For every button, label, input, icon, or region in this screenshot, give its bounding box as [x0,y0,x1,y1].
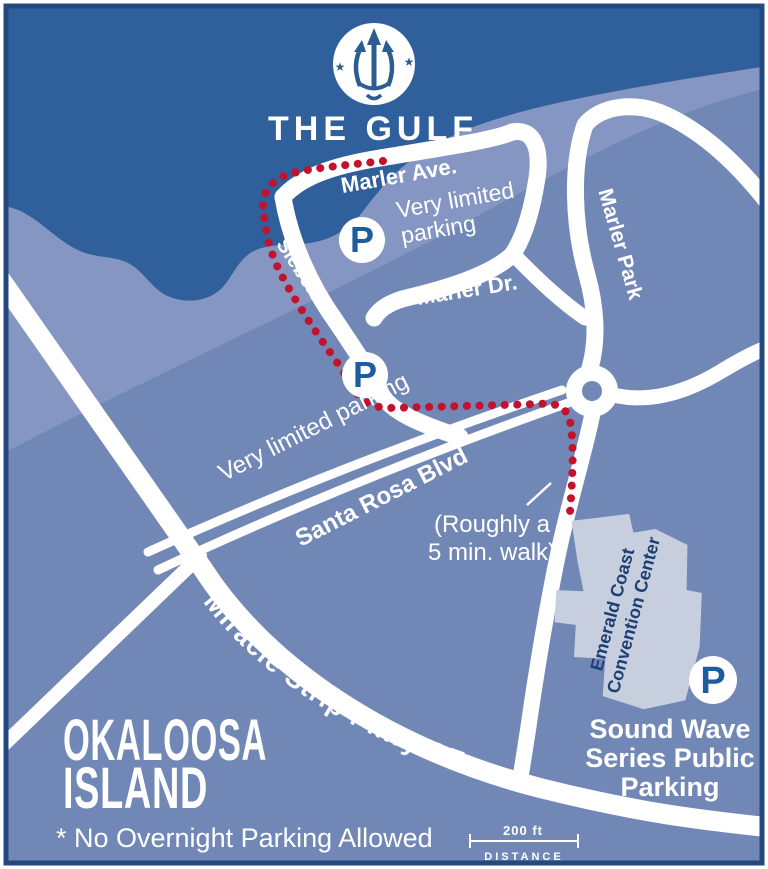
sound-wave-line3: Parking [620,772,719,802]
walk-note-line1: (Roughly a [434,511,551,538]
label-no-overnight-parking: * No Overnight Parking Allowed [56,823,433,853]
okaloosa-parking-map: Marler Ave. Very limitedparking Siebert … [0,0,768,869]
sound-wave-line2: Series Public [585,743,755,773]
star-left-icon: ★ [335,60,346,74]
label-walk-note: (Roughly a5 min. walk) [428,511,556,566]
star-right-icon: ★ [404,55,415,69]
parking-icon-marler-ave: P [339,217,385,263]
parking-icon-letter: P [353,354,377,395]
gulf-logo-title: THE GULF [268,110,478,148]
label-island: ISLAND [63,756,208,821]
parking-icon-letter: P [350,219,374,260]
parking-icon-letter: P [700,660,725,702]
roundabout-island [582,381,602,401]
sound-wave-line1: Sound Wave [589,714,750,744]
map-canvas: Marler Ave. Very limitedparking Siebert … [0,0,768,869]
walk-note-line2: 5 min. walk) [428,539,556,566]
parking-icon-sound-wave: P [689,656,737,704]
scale-bar-distance-value: 200 ft [503,823,543,838]
parking-icon-siebert: P [342,352,388,398]
